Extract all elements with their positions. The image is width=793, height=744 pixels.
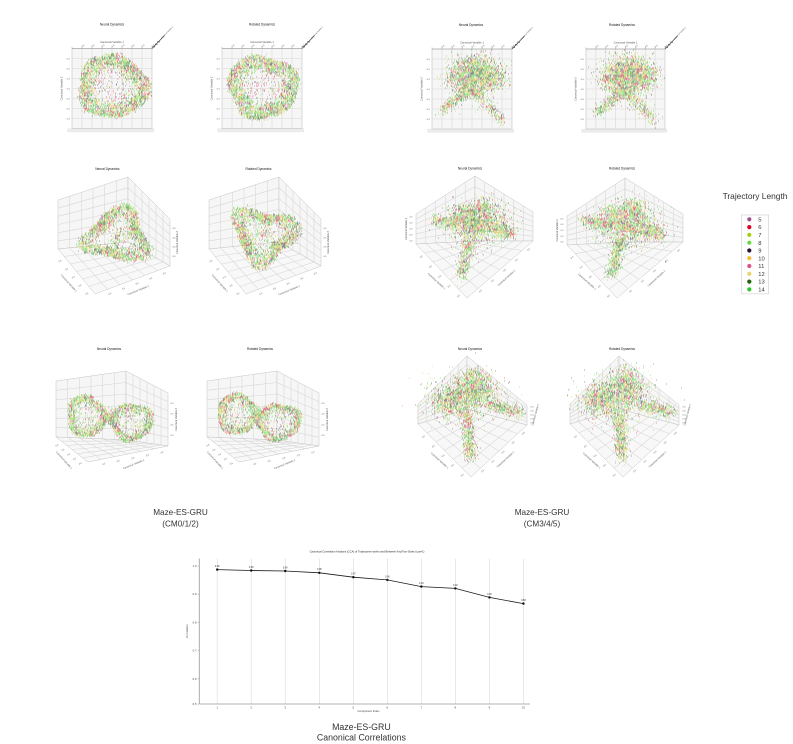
svg-text:0.94: 0.94 [419, 582, 424, 585]
svg-text:0.90: 0.90 [487, 593, 492, 596]
svg-text:Maze-ES-GRU: Maze-ES-GRU [332, 722, 391, 732]
svg-text:Rotated Dynamics: Rotated Dynamics [249, 23, 275, 27]
svg-text:0.97: 0.97 [351, 573, 356, 576]
svg-text:Neural Dynamics: Neural Dynamics [97, 347, 122, 351]
svg-text:(CM0/1/2): (CM0/1/2) [162, 519, 199, 528]
svg-text:9: 9 [758, 249, 761, 255]
svg-text:Rotated Dynamics: Rotated Dynamics [609, 23, 635, 27]
svg-text:10: 10 [522, 706, 526, 710]
svg-text:0.99: 0.99 [249, 566, 254, 569]
svg-text:6: 6 [758, 225, 761, 231]
svg-text:Canonical Variable 3: Canonical Variable 3 [176, 230, 179, 253]
svg-text:Canonical Correlations: Canonical Correlations [317, 732, 407, 742]
svg-text:Canonical Variable 1: Canonical Variable 1 [460, 40, 484, 44]
svg-text:Rotated Dynamics: Rotated Dynamics [245, 167, 271, 171]
svg-text:14: 14 [758, 288, 765, 294]
svg-text:Neural Dynamics: Neural Dynamics [95, 167, 120, 171]
svg-text:0.5: 0.5 [193, 702, 197, 706]
svg-text:Correlation: Correlation [185, 624, 189, 638]
svg-text:0.99: 0.99 [215, 565, 220, 568]
svg-text:Neural Dynamics: Neural Dynamics [459, 23, 484, 27]
svg-text:Maze-ES-GRU: Maze-ES-GRU [153, 508, 208, 517]
svg-text:Canonical Variable 1: Canonical Variable 1 [100, 40, 124, 44]
svg-text:Canonical Variable 3: Canonical Variable 3 [327, 230, 330, 253]
svg-text:Maze-ES-GRU: Maze-ES-GRU [515, 508, 570, 517]
svg-text:0.6: 0.6 [193, 677, 197, 681]
svg-text:Canonical Variable 3: Canonical Variable 3 [405, 217, 408, 240]
svg-text:Canonical Variable 3: Canonical Variable 3 [326, 407, 329, 430]
svg-text:7: 7 [758, 233, 761, 239]
svg-text:0.9: 0.9 [193, 592, 197, 596]
svg-text:(CM3/4/5): (CM3/4/5) [524, 519, 561, 528]
svg-text:0.8: 0.8 [193, 620, 197, 624]
svg-text:Component Index: Component Index [357, 709, 380, 713]
svg-text:Canonical Variable 2: Canonical Variable 2 [60, 76, 64, 100]
svg-text:0.96: 0.96 [385, 575, 390, 578]
svg-text:0.93: 0.93 [453, 584, 458, 587]
svg-text:10: 10 [758, 256, 764, 262]
svg-text:0.88: 0.88 [521, 599, 526, 602]
svg-text:Canonical Variable 1: Canonical Variable 1 [250, 40, 274, 44]
svg-text:0.98: 0.98 [317, 568, 322, 571]
svg-text:12: 12 [758, 272, 764, 278]
svg-text:5: 5 [758, 217, 761, 223]
svg-text:Canonical Variable 2: Canonical Variable 2 [420, 77, 424, 101]
svg-text:Rotated Dynamics: Rotated Dynamics [609, 167, 635, 171]
svg-text:Neural Dynamics: Neural Dynamics [458, 347, 483, 351]
svg-text:Neural Dynamics: Neural Dynamics [100, 23, 125, 27]
svg-text:Canonical Variable 1: Canonical Variable 1 [614, 40, 638, 44]
svg-text:Trajectory Length: Trajectory Length [723, 191, 788, 201]
svg-text:1.0: 1.0 [193, 564, 197, 568]
svg-text:8: 8 [758, 241, 761, 247]
svg-text:Neural Dynamics: Neural Dynamics [458, 167, 483, 171]
svg-text:Canonical Variable 2: Canonical Variable 2 [574, 77, 578, 101]
svg-text:Canonical Variable 3: Canonical Variable 3 [175, 407, 178, 430]
svg-text:Canonical Variable 3: Canonical Variable 3 [556, 219, 559, 242]
svg-text:0.99: 0.99 [283, 566, 288, 569]
svg-text:0.7: 0.7 [193, 649, 197, 653]
svg-text:Canonical Variable 2: Canonical Variable 2 [210, 76, 214, 100]
svg-text:13: 13 [758, 280, 764, 286]
svg-text:11: 11 [758, 264, 764, 270]
svg-text:Rotated Dynamics: Rotated Dynamics [247, 347, 273, 351]
svg-text:Canonical Correlation Analysis: Canonical Correlation Analysis (CCA) of … [310, 550, 425, 554]
svg-text:Rotated Dynamics: Rotated Dynamics [609, 347, 635, 351]
